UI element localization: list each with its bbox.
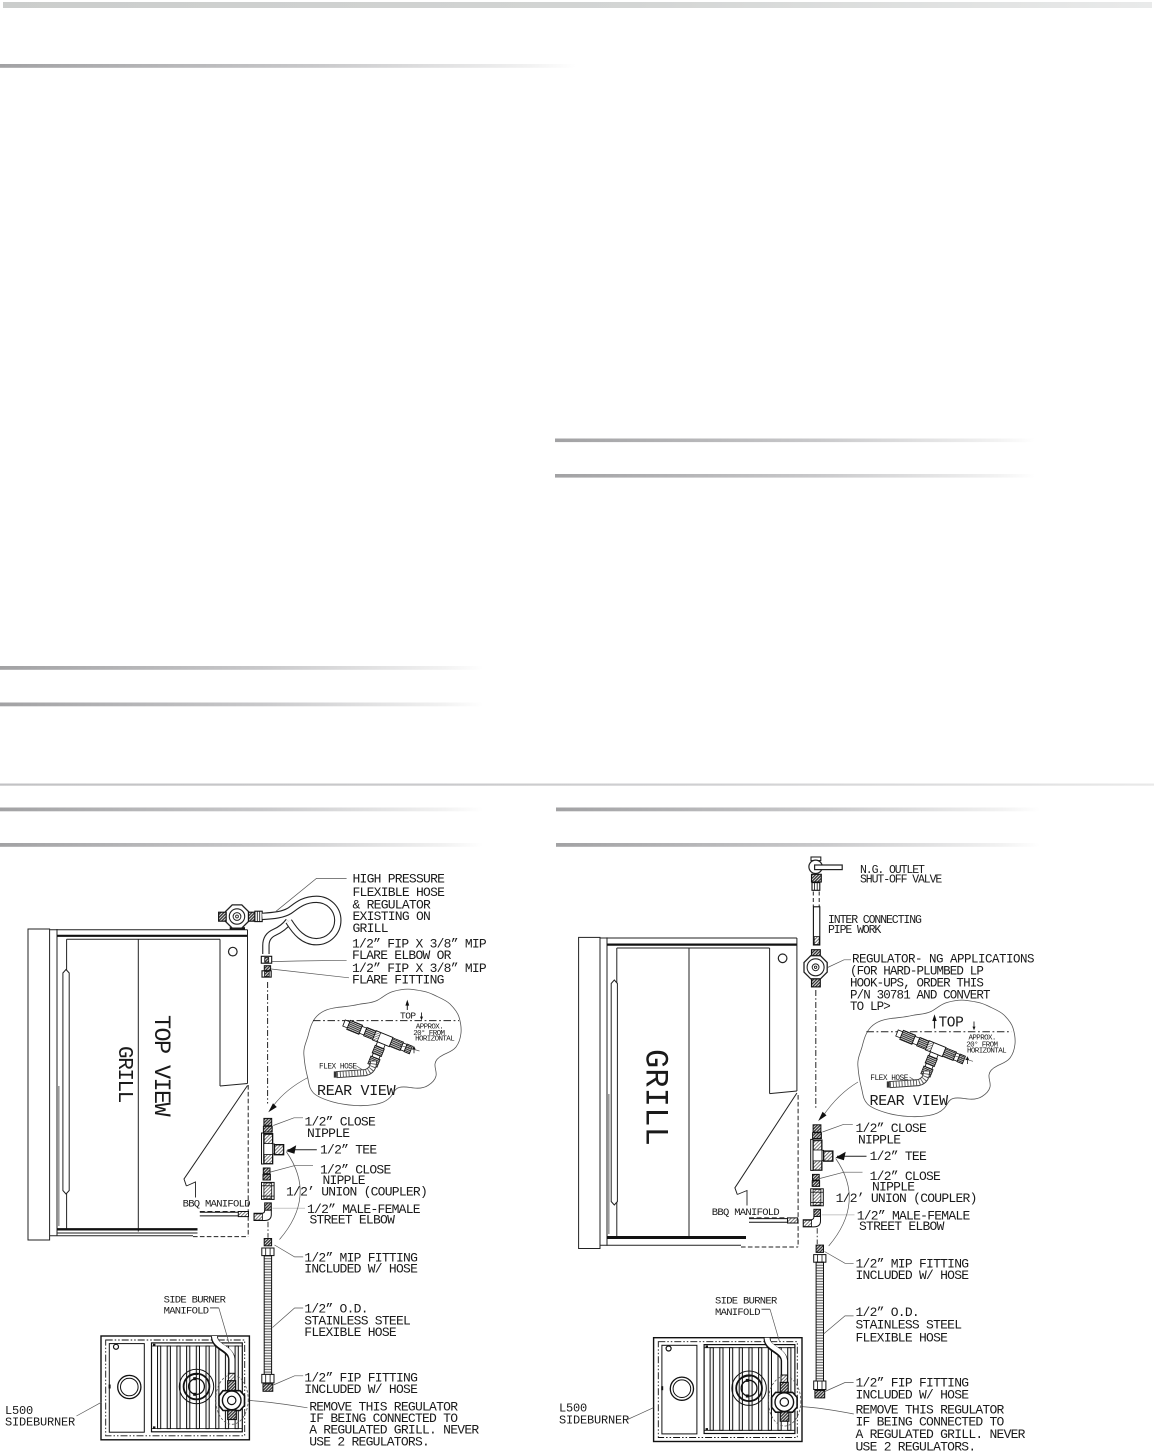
svg-text:1/2” TEE: 1/2” TEE <box>870 1149 927 1164</box>
svg-text:SIDE BURNER: SIDE BURNER <box>164 1294 227 1306</box>
svg-text:NIPPLE: NIPPLE <box>307 1126 350 1141</box>
svg-text:USE 2 REGULATORS.: USE 2 REGULATORS. <box>856 1440 976 1451</box>
svg-text:MANIFOLD: MANIFOLD <box>164 1306 209 1318</box>
svg-text:TOP VIEW: TOP VIEW <box>147 1015 174 1118</box>
svg-text:SHUT-OFF VALVE: SHUT-OFF VALVE <box>860 873 942 886</box>
svg-text:FLEX HOSE: FLEX HOSE <box>319 1063 357 1071</box>
svg-text:NIPPLE: NIPPLE <box>858 1132 901 1147</box>
svg-text:REAR VIEW: REAR VIEW <box>317 1083 396 1100</box>
svg-text:FLEX HOSE: FLEX HOSE <box>870 1075 908 1083</box>
svg-text:1/2” TEE: 1/2” TEE <box>320 1143 377 1158</box>
svg-text:BBQ MANIFOLD: BBQ MANIFOLD <box>712 1207 780 1219</box>
svg-text:GRILL: GRILL <box>353 921 388 936</box>
svg-text:SIDE BURNER: SIDE BURNER <box>715 1295 778 1307</box>
svg-text:FLEXIBLE HOSE: FLEXIBLE HOSE <box>304 1325 397 1340</box>
svg-text:GRILL: GRILL <box>637 1049 674 1146</box>
svg-text:SIDEBURNER: SIDEBURNER <box>5 1416 75 1430</box>
svg-text:FLEXIBLE HOSE: FLEXIBLE HOSE <box>856 1331 949 1346</box>
svg-text:STREET ELBOW: STREET ELBOW <box>859 1219 945 1234</box>
svg-text:INCLUDED W/ HOSE: INCLUDED W/ HOSE <box>856 1388 970 1403</box>
svg-text:HORIZONTAL: HORIZONTAL <box>415 1036 455 1044</box>
svg-text:BBQ MANIFOLD: BBQ MANIFOLD <box>183 1198 251 1210</box>
svg-text:SIDEBURNER: SIDEBURNER <box>559 1414 629 1428</box>
svg-text:STREET ELBOW: STREET ELBOW <box>310 1213 396 1228</box>
svg-text:TO LP>: TO LP> <box>850 1000 890 1014</box>
svg-text:INCLUDED W/ HOSE: INCLUDED W/ HOSE <box>304 1382 418 1397</box>
svg-text:HORIZONTAL: HORIZONTAL <box>967 1048 1007 1056</box>
svg-text:INCLUDED W/ HOSE: INCLUDED W/ HOSE <box>304 1262 418 1277</box>
svg-text:USE 2 REGULATORS.: USE 2 REGULATORS. <box>309 1435 429 1450</box>
svg-text:FLARE FITTING: FLARE FITTING <box>352 973 444 988</box>
svg-text:1/2’ UNION (COUPLER): 1/2’ UNION (COUPLER) <box>836 1191 977 1206</box>
svg-text:MANIFOLD: MANIFOLD <box>715 1307 760 1319</box>
svg-text:GRILL: GRILL <box>112 1046 135 1103</box>
svg-text:REAR VIEW: REAR VIEW <box>870 1093 949 1110</box>
svg-text:PIPE WORK: PIPE WORK <box>828 924 881 937</box>
svg-text:INCLUDED W/ HOSE: INCLUDED W/ HOSE <box>856 1268 970 1283</box>
svg-text:TOP: TOP <box>939 1015 964 1031</box>
svg-text:TOP: TOP <box>400 1010 416 1021</box>
svg-text:1/2’ UNION (COUPLER): 1/2’ UNION (COUPLER) <box>286 1185 427 1200</box>
